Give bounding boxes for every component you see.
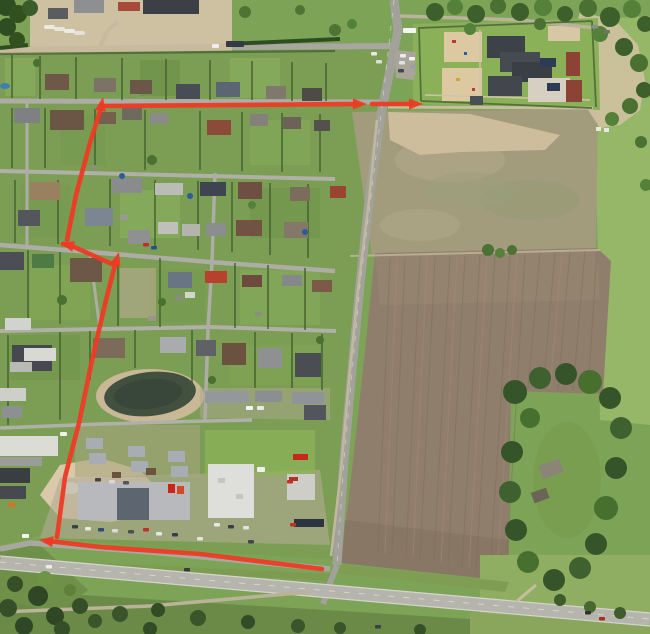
bush [112, 606, 128, 622]
tree [295, 5, 305, 15]
tree [520, 408, 540, 428]
tree [623, 0, 641, 18]
tree-light [64, 584, 76, 596]
house [130, 80, 152, 94]
car [398, 69, 404, 73]
tree [569, 557, 591, 579]
bush [151, 603, 165, 617]
bush [291, 619, 305, 633]
tree [9, 32, 25, 48]
house [18, 210, 40, 226]
house [94, 78, 116, 92]
car [123, 481, 129, 485]
tree [505, 519, 527, 541]
tree [499, 481, 521, 503]
car [599, 617, 605, 621]
play-equipment [472, 88, 475, 91]
house [290, 187, 310, 201]
industrial-building-dark [0, 486, 26, 499]
car [243, 526, 249, 530]
industrial-building [0, 436, 58, 456]
car [156, 532, 162, 536]
industrial-building [24, 348, 56, 361]
farm-road [0, 47, 232, 51]
house [182, 224, 200, 236]
bush [28, 586, 48, 606]
house [250, 114, 268, 126]
house-green-roof [32, 254, 54, 268]
excavator [8, 502, 15, 507]
red-container [168, 484, 175, 493]
car [128, 530, 134, 534]
house [196, 340, 216, 356]
play-equipment [456, 78, 460, 81]
car [214, 523, 220, 527]
tree [208, 376, 216, 384]
solar-panel [547, 83, 560, 91]
van [257, 467, 265, 472]
tree [239, 6, 251, 18]
car [109, 480, 115, 484]
barn [74, 0, 104, 13]
garden-shed [120, 215, 128, 220]
tree [495, 248, 505, 258]
tree-light [38, 571, 52, 585]
tree [501, 441, 523, 463]
house [0, 388, 26, 401]
play-equipment [452, 40, 456, 43]
tank [54, 27, 65, 31]
tree [467, 5, 485, 23]
white-marker [604, 128, 609, 132]
tree [503, 380, 527, 404]
car [248, 540, 254, 544]
car [399, 61, 405, 65]
tree [147, 155, 157, 165]
house [283, 117, 301, 129]
house [238, 182, 262, 199]
house [168, 272, 192, 288]
car [143, 243, 149, 247]
aerial-photo-canvas [0, 0, 650, 634]
garden-shed [175, 295, 183, 300]
white-marker [596, 127, 601, 131]
house [222, 343, 246, 365]
car [72, 525, 78, 529]
tree [534, 18, 546, 30]
pool [0, 83, 10, 89]
garden-shed [255, 312, 262, 316]
greenhouse [185, 292, 195, 298]
industrial-building [0, 457, 42, 466]
cabin [89, 453, 106, 464]
top-road [232, 46, 395, 47]
school-sand-ne [548, 26, 580, 41]
tree [329, 24, 341, 36]
car [400, 54, 406, 58]
tree [22, 0, 38, 16]
roof-unit [218, 478, 225, 483]
car [172, 533, 178, 537]
tree [511, 3, 529, 21]
dark-trailer [294, 519, 324, 527]
cabin [86, 438, 103, 449]
tree [316, 336, 324, 344]
tree [57, 295, 67, 305]
house [70, 258, 102, 282]
aerial-route-map [0, 0, 650, 634]
tree [622, 98, 638, 114]
bush [614, 607, 626, 619]
tree [482, 244, 494, 256]
car [60, 432, 67, 436]
house [242, 275, 262, 287]
car [95, 478, 101, 482]
car [375, 625, 381, 629]
bus [403, 28, 416, 33]
trampoline [119, 173, 125, 179]
car [290, 523, 296, 527]
car [371, 52, 377, 56]
house [207, 120, 231, 135]
house [158, 222, 178, 234]
car [22, 534, 29, 538]
bush [334, 622, 346, 634]
house [304, 405, 326, 420]
bush [7, 576, 23, 592]
house [266, 86, 286, 99]
house [50, 110, 84, 130]
cabin [128, 446, 145, 457]
bush [241, 615, 255, 629]
tree [605, 112, 619, 126]
tree [594, 496, 618, 520]
car [151, 246, 157, 250]
house [2, 406, 22, 418]
barn-red-roof [118, 2, 140, 11]
lawn-patch [5, 58, 35, 96]
school-building [488, 76, 522, 96]
garden-shed [90, 165, 97, 169]
school-building-small [470, 96, 483, 105]
bush [88, 614, 102, 628]
roof-unit [236, 494, 243, 499]
scrub-lot [120, 268, 156, 318]
cabin [171, 466, 188, 477]
car [228, 525, 234, 529]
industrial-building-dark [0, 468, 30, 483]
bush [190, 610, 206, 626]
van [257, 406, 264, 410]
car [287, 480, 293, 484]
house-solar [200, 182, 226, 196]
red-container [177, 486, 184, 494]
garage-row [205, 391, 249, 403]
tree [585, 533, 607, 555]
tree [630, 54, 648, 72]
house [30, 182, 60, 200]
tree [517, 551, 539, 573]
school-building-red [566, 80, 582, 102]
car [46, 565, 52, 569]
car [592, 25, 598, 29]
tree [543, 569, 565, 591]
car [409, 57, 415, 61]
tree [33, 59, 41, 67]
industrial-building [10, 362, 32, 372]
barn [143, 0, 199, 14]
house [0, 252, 24, 270]
car [112, 529, 118, 533]
house [312, 280, 332, 292]
commercial-building-white [208, 464, 254, 518]
tree [557, 6, 573, 22]
tree-cluster-clearing [533, 422, 601, 538]
car [585, 611, 591, 615]
tree [158, 298, 166, 306]
car [410, 65, 416, 69]
tree [529, 367, 551, 389]
scrub-mottle [380, 209, 460, 241]
house [155, 183, 183, 195]
commercial-building-gable [117, 488, 149, 520]
tree [605, 457, 627, 479]
car [197, 537, 203, 541]
route-segment-top-west [101, 104, 356, 106]
house [176, 84, 200, 99]
cabin [168, 451, 185, 462]
barn [48, 8, 68, 19]
cabin [131, 461, 148, 472]
car [604, 30, 610, 34]
tree [347, 19, 357, 29]
tree [464, 23, 476, 35]
garden-shed [148, 316, 156, 321]
tank [64, 29, 75, 33]
cabin-shed [146, 468, 156, 475]
bush [72, 598, 88, 614]
red-truck [293, 454, 308, 460]
house [45, 74, 69, 90]
trampoline [302, 229, 308, 235]
tank [74, 31, 85, 35]
tank [44, 25, 55, 29]
solar-panel [540, 58, 556, 67]
truck [226, 41, 244, 47]
house [14, 108, 40, 123]
tree [635, 136, 647, 148]
garage-row [255, 391, 282, 402]
house [216, 82, 240, 97]
house [206, 223, 226, 236]
house [258, 348, 282, 368]
car [184, 568, 190, 572]
house [85, 208, 113, 226]
school-playground-sand [444, 32, 482, 62]
bush [554, 594, 566, 606]
trampoline [187, 193, 193, 199]
tree [599, 387, 621, 409]
car [98, 528, 104, 532]
car [85, 527, 91, 531]
school-building-red [566, 52, 580, 76]
house [122, 108, 142, 120]
house [236, 220, 262, 236]
car [212, 44, 219, 48]
tree [578, 370, 602, 394]
house [5, 318, 31, 330]
house [128, 230, 150, 244]
house-red-roof [205, 271, 227, 283]
street-1 [0, 101, 388, 102]
tree [555, 363, 577, 385]
cabin-shed [112, 472, 121, 478]
house [302, 88, 322, 101]
tree [600, 7, 620, 27]
tree [426, 3, 444, 21]
car [376, 60, 382, 64]
house [112, 178, 142, 193]
house [160, 337, 186, 353]
tree [610, 417, 632, 439]
house [295, 353, 321, 377]
scrub-mottle [425, 172, 515, 208]
car [143, 528, 149, 532]
tree [615, 38, 633, 56]
house [150, 113, 168, 124]
tree [248, 201, 256, 209]
tree [507, 245, 517, 255]
house [282, 275, 302, 286]
play-equipment [464, 52, 467, 55]
van [246, 406, 253, 410]
house [314, 120, 330, 131]
garage-row [292, 392, 324, 404]
house [330, 186, 346, 198]
